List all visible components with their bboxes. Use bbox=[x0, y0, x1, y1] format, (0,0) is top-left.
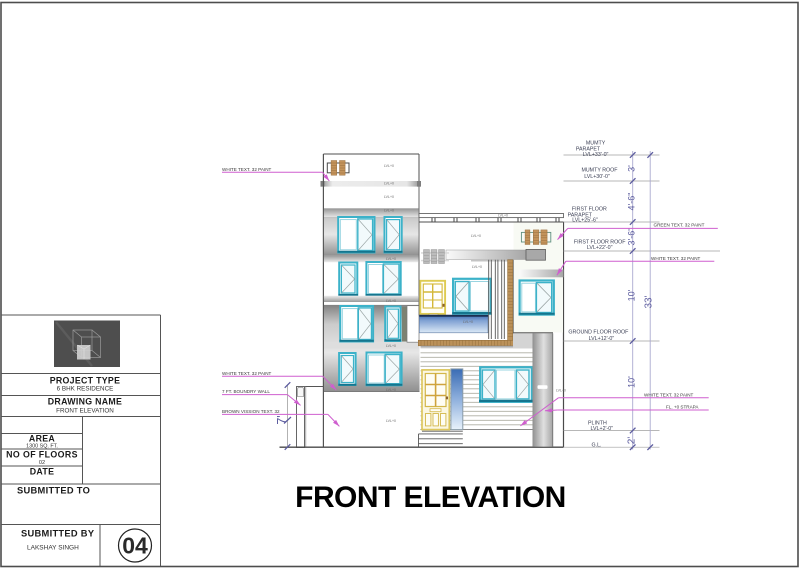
svg-text:02: 02 bbox=[39, 460, 45, 466]
svg-text:LVL+0: LVL+0 bbox=[386, 257, 396, 261]
svg-text:LVL+33'-0": LVL+33'-0" bbox=[583, 152, 609, 158]
svg-text:3'-6": 3'-6" bbox=[627, 228, 637, 246]
svg-text:2': 2' bbox=[627, 437, 638, 445]
svg-text:7': 7' bbox=[275, 415, 289, 424]
svg-text:LVL+22'-0": LVL+22'-0" bbox=[587, 245, 613, 251]
svg-text:WHITE TEXT. 32 PAINT: WHITE TEXT. 32 PAINT bbox=[644, 392, 694, 397]
svg-text:BROWN VISSION TEXT. 32: BROWN VISSION TEXT. 32 bbox=[222, 409, 280, 414]
svg-text:FRONT ELEVATION: FRONT ELEVATION bbox=[295, 481, 566, 514]
svg-text:G.L.: G.L. bbox=[591, 442, 601, 448]
svg-text:PROJECT TYPE: PROJECT TYPE bbox=[50, 375, 121, 385]
svg-text:LVL+0: LVL+0 bbox=[472, 265, 482, 269]
svg-text:FL. +0 STRAPA: FL. +0 STRAPA bbox=[666, 405, 699, 410]
svg-text:LVL+0: LVL+0 bbox=[384, 164, 394, 168]
svg-text:SUBMITTED TO: SUBMITTED TO bbox=[17, 486, 90, 496]
svg-text:LVL+0: LVL+0 bbox=[386, 344, 396, 348]
svg-text:WHITE TEXT. 32 PAINT: WHITE TEXT. 32 PAINT bbox=[222, 371, 272, 376]
svg-text:LVL+0: LVL+0 bbox=[556, 389, 566, 393]
svg-text:10': 10' bbox=[627, 289, 637, 301]
svg-text:DRAWING NAME: DRAWING NAME bbox=[48, 397, 122, 407]
svg-text:LVL+0: LVL+0 bbox=[471, 234, 481, 238]
svg-text:GREEN TEXT. 32 PAINT: GREEN TEXT. 32 PAINT bbox=[654, 223, 705, 228]
svg-text:SUBMITTED BY: SUBMITTED BY bbox=[21, 529, 95, 539]
svg-text:LVL+0: LVL+0 bbox=[498, 214, 508, 218]
svg-text:33': 33' bbox=[644, 295, 655, 308]
svg-text:LVL+0: LVL+0 bbox=[384, 195, 394, 199]
svg-text:3': 3' bbox=[627, 165, 637, 172]
svg-text:6 BHK RESIDENCE: 6 BHK RESIDENCE bbox=[57, 386, 114, 393]
svg-text:DATE: DATE bbox=[30, 467, 55, 477]
svg-text:4'-6": 4'-6" bbox=[627, 193, 637, 211]
svg-text:AREA: AREA bbox=[29, 434, 55, 444]
svg-text:7 FT. BOUNDRY WALL: 7 FT. BOUNDRY WALL bbox=[222, 389, 270, 394]
svg-text:LVL+12'-0": LVL+12'-0" bbox=[589, 336, 615, 342]
svg-text:LVL+0: LVL+0 bbox=[384, 182, 394, 186]
svg-text:WHITE TEXT. 32 PAINT: WHITE TEXT. 32 PAINT bbox=[222, 167, 272, 172]
svg-text:10': 10' bbox=[627, 376, 637, 388]
svg-text:GROUND FLOOR ROOF: GROUND FLOOR ROOF bbox=[568, 330, 629, 336]
svg-text:FRONT ELEVATION: FRONT ELEVATION bbox=[56, 408, 114, 415]
svg-text:LVL+0: LVL+0 bbox=[386, 299, 396, 303]
svg-text:LAKSHAY SINGH: LAKSHAY SINGH bbox=[27, 545, 79, 552]
svg-text:LVL+2'-0": LVL+2'-0" bbox=[590, 426, 613, 432]
svg-text:MUMTY ROOF: MUMTY ROOF bbox=[581, 168, 618, 174]
svg-text:LVL+25'-6": LVL+25'-6" bbox=[572, 218, 598, 224]
svg-text:LVL+0: LVL+0 bbox=[384, 209, 394, 213]
svg-text:04: 04 bbox=[122, 533, 148, 559]
svg-text:LVL+0: LVL+0 bbox=[386, 388, 396, 392]
svg-text:WHITE TEXT. 32 PAINT: WHITE TEXT. 32 PAINT bbox=[651, 256, 701, 261]
svg-text:LVL+30'-0": LVL+30'-0" bbox=[584, 174, 610, 180]
svg-text:LVL+0: LVL+0 bbox=[386, 419, 396, 423]
svg-text:LVL+0: LVL+0 bbox=[463, 320, 473, 324]
svg-text:NO OF FLOORS: NO OF FLOORS bbox=[6, 450, 78, 460]
